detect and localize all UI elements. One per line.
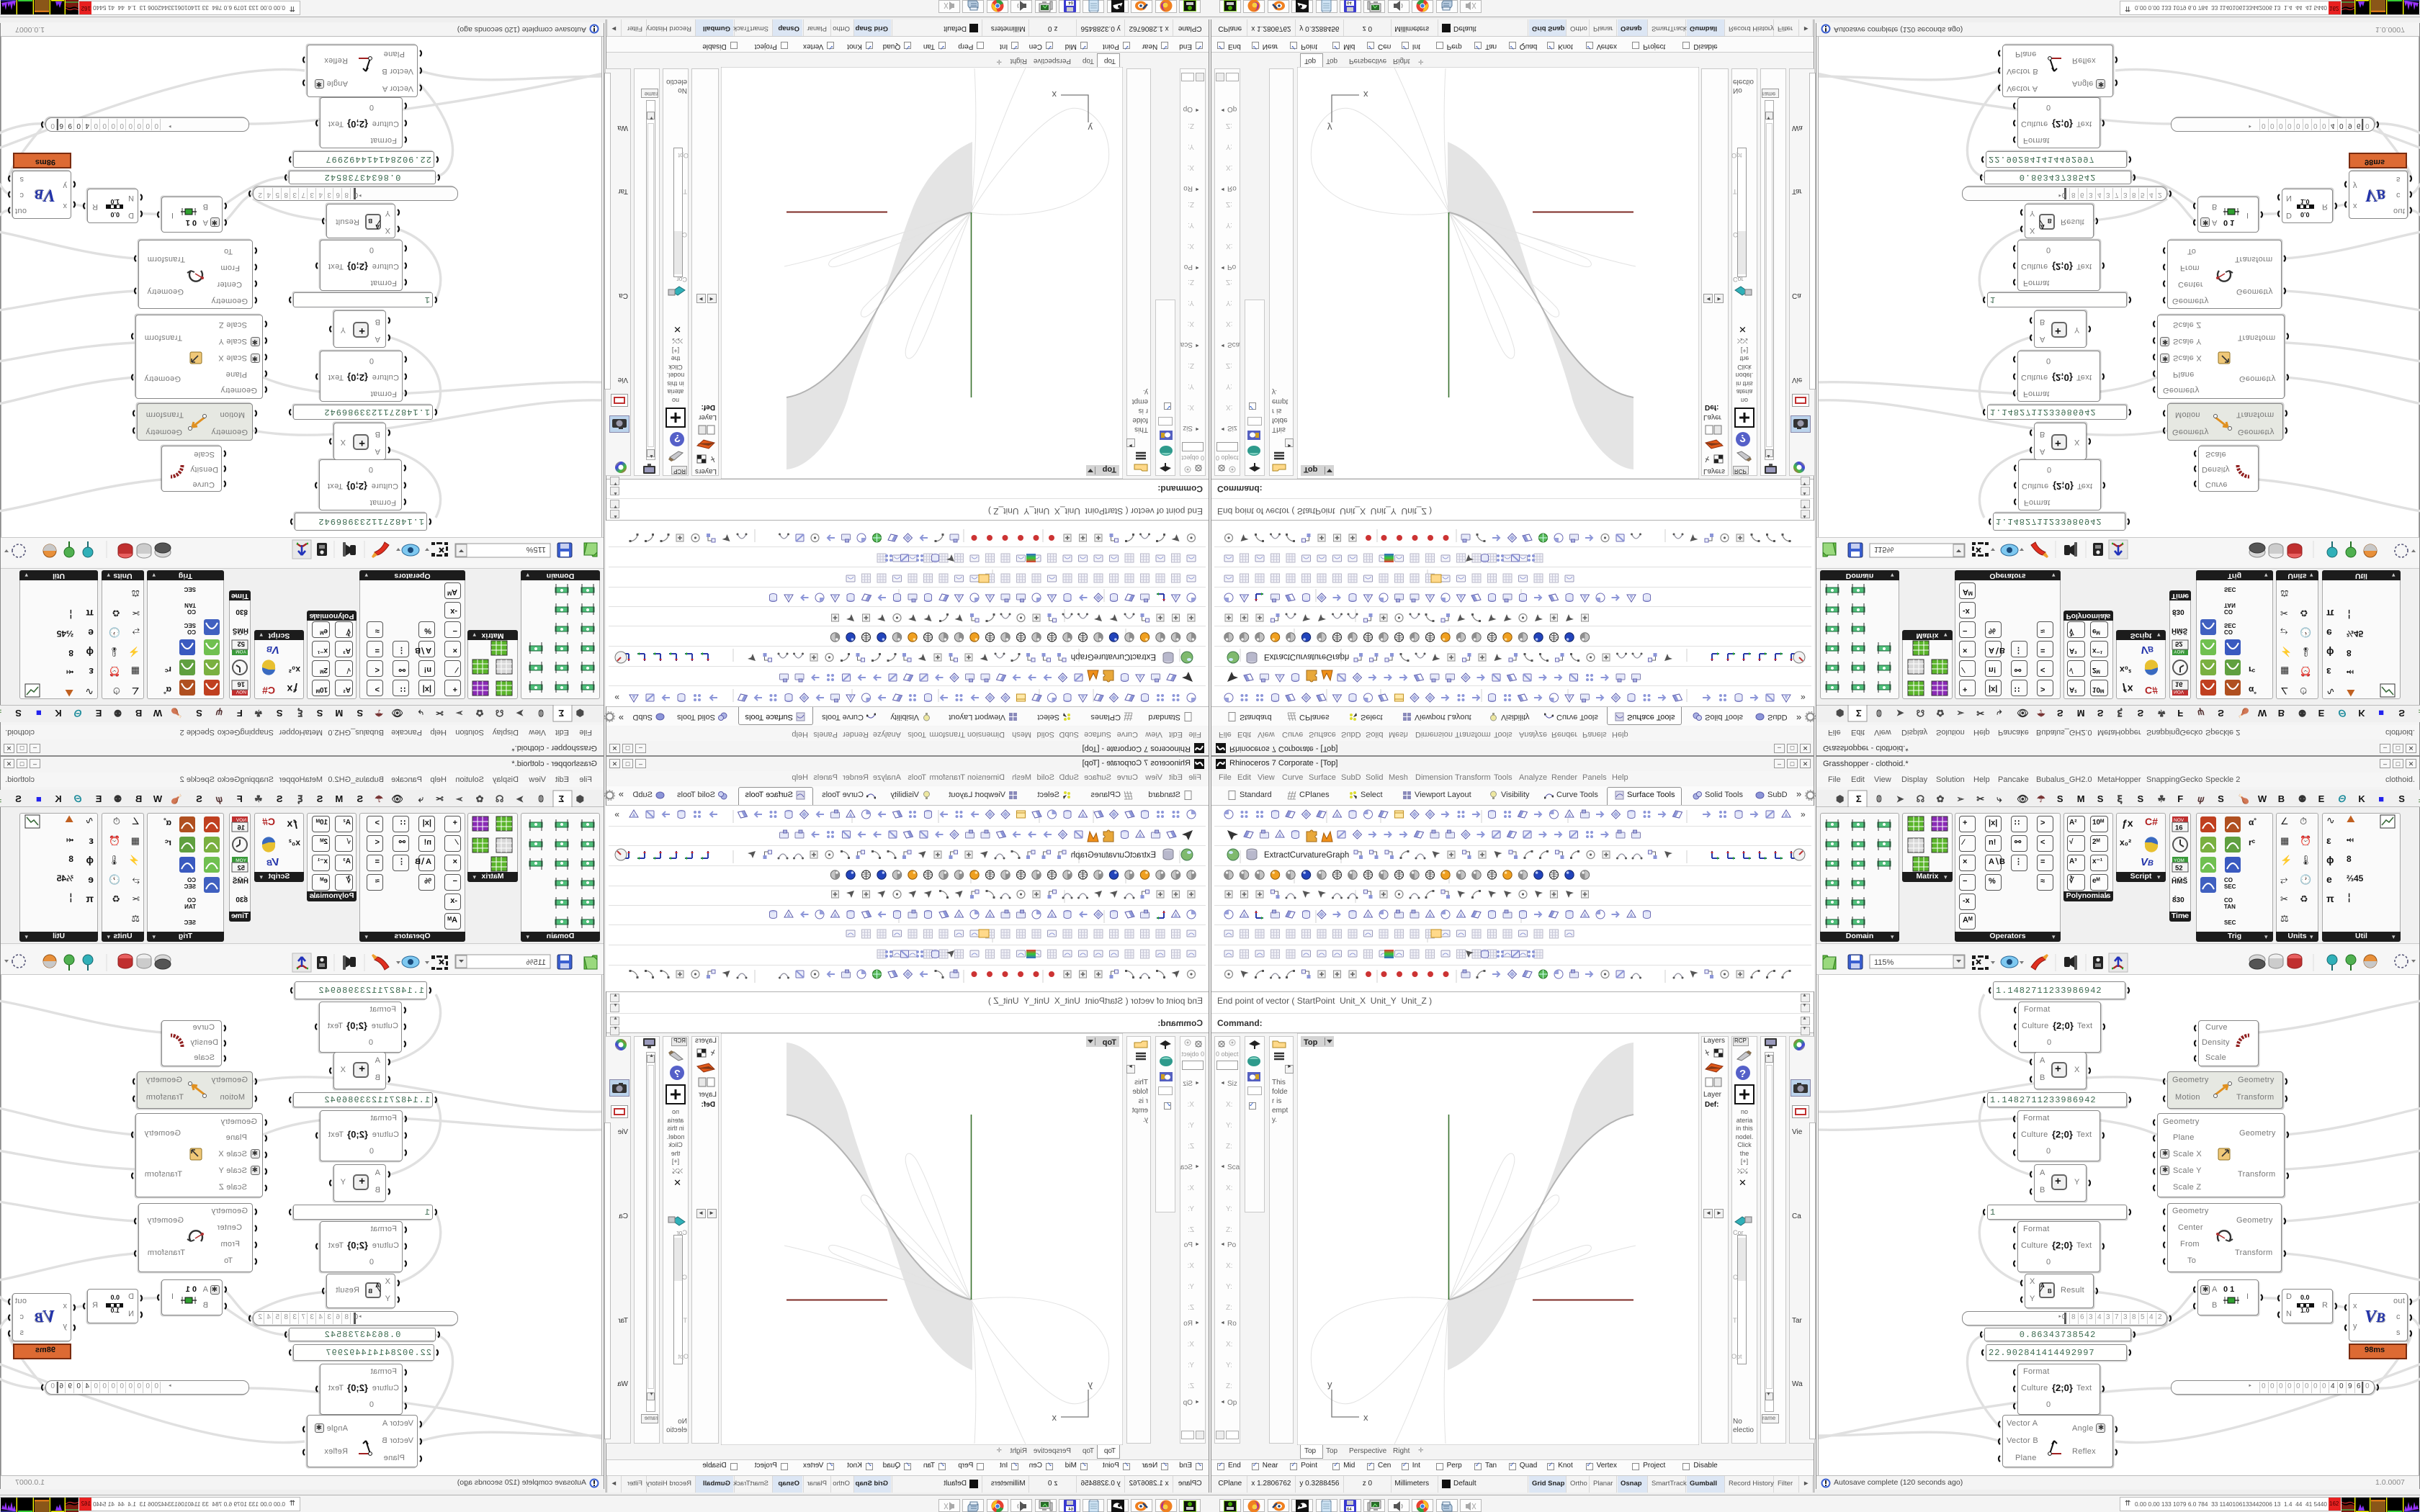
svg-text:S: S: [277, 708, 283, 719]
svg-text:W: W: [153, 708, 162, 719]
svg-text:K: K: [2358, 793, 2365, 804]
svg-text:?: ?: [1739, 432, 1746, 444]
svg-text:☊: ☊: [495, 708, 503, 719]
svg-text:F: F: [237, 708, 243, 719]
svg-text:»: »: [1801, 809, 1806, 819]
svg-text:🍗: 🍗: [171, 708, 182, 719]
svg-text:🍗: 🍗: [2238, 708, 2249, 719]
svg-text:52: 52: [2175, 640, 2183, 648]
svg-text:ExtractCurvatureGraph: ExtractCurvatureGraph: [1264, 851, 1349, 860]
svg-text:𝛏: 𝛏: [2117, 708, 2123, 719]
svg-text:y: y: [1327, 1379, 1332, 1390]
svg-text:✂: ✂: [1976, 793, 1984, 804]
svg-text:S: S: [15, 793, 22, 804]
svg-text:»: »: [1801, 693, 1806, 703]
svg-text:■: ■: [36, 708, 42, 719]
svg-text:»: »: [614, 693, 619, 703]
svg-text:S: S: [2057, 708, 2063, 719]
svg-text:Top: Top: [1102, 465, 1116, 474]
svg-text:☊: ☊: [1917, 793, 1925, 804]
svg-text:S: S: [2218, 793, 2224, 804]
svg-text:?: ?: [1739, 1068, 1746, 1080]
svg-text:➢: ➢: [1956, 793, 1965, 804]
svg-text:𝛏: 𝛏: [297, 708, 302, 719]
svg-text:E: E: [95, 708, 102, 719]
svg-text:ExtractCurvatureGraph: ExtractCurvatureGraph: [1264, 652, 1349, 661]
svg-text:y: y: [1327, 122, 1332, 133]
svg-text:Σ: Σ: [1856, 793, 1862, 804]
svg-text:115%: 115%: [526, 545, 546, 554]
svg-text:E: E: [2318, 708, 2325, 719]
svg-text:?: ?: [674, 1068, 681, 1080]
svg-text:»: »: [614, 809, 619, 819]
svg-text:𝛏: 𝛏: [2117, 793, 2123, 804]
svg-text:✿: ✿: [476, 793, 484, 804]
svg-text:M: M: [2077, 708, 2085, 719]
svg-text:S: S: [2097, 793, 2104, 804]
svg-text:S: S: [2138, 708, 2144, 719]
svg-text:S: S: [196, 708, 202, 719]
svg-text:Σ: Σ: [1856, 708, 1862, 719]
svg-text:☘: ☘: [2157, 793, 2166, 804]
svg-text:Top: Top: [1102, 1038, 1116, 1047]
svg-text:𝜓: 𝜓: [215, 793, 223, 804]
svg-text:Σ: Σ: [558, 708, 564, 719]
svg-text:F: F: [237, 793, 243, 804]
svg-text:B: B: [2278, 793, 2285, 804]
svg-text:y: y: [1088, 122, 1093, 133]
svg-text:115%: 115%: [526, 958, 546, 967]
svg-text:S: S: [15, 708, 22, 719]
svg-text:𝛏: 𝛏: [297, 793, 302, 804]
svg-text:F: F: [2177, 708, 2183, 719]
svg-text:S: S: [196, 793, 202, 804]
svg-text:☊: ☊: [495, 793, 503, 804]
svg-text:64: 64: [1068, 1508, 1073, 1512]
svg-text:☘: ☘: [2157, 708, 2166, 719]
svg-text:■: ■: [36, 793, 42, 804]
svg-text:16: 16: [237, 824, 245, 832]
svg-text:M: M: [335, 793, 343, 804]
svg-text:K: K: [55, 708, 62, 719]
svg-text:Top: Top: [1304, 1038, 1318, 1047]
svg-text:W: W: [2258, 793, 2267, 804]
svg-text:64: 64: [1347, 0, 1352, 4]
svg-text:➢: ➢: [1956, 708, 1965, 719]
svg-text:115%: 115%: [1874, 958, 1894, 967]
svg-text:52: 52: [2175, 865, 2183, 873]
svg-text:⤷: ⤷: [418, 708, 423, 719]
svg-text:⚉: ⚉: [2298, 793, 2307, 804]
svg-text:𝜓: 𝜓: [2197, 708, 2205, 719]
svg-text:E: E: [2318, 793, 2325, 804]
svg-text:F: F: [2177, 793, 2183, 804]
svg-text:52: 52: [237, 865, 245, 873]
svg-text:☘: ☘: [254, 708, 263, 719]
svg-text:x: x: [1363, 89, 1368, 100]
svg-text:W: W: [2258, 708, 2267, 719]
svg-text:☂: ☂: [2037, 708, 2045, 719]
svg-text:16: 16: [237, 680, 245, 688]
svg-text:x: x: [1052, 1412, 1057, 1423]
svg-text:S: S: [2398, 708, 2405, 719]
svg-text:🍗: 🍗: [2238, 793, 2249, 804]
svg-text:⬢: ⬢: [1836, 708, 1844, 719]
svg-text:👁: 👁: [391, 793, 403, 804]
svg-text:y: y: [1088, 1379, 1093, 1390]
svg-text:16: 16: [2175, 680, 2183, 688]
svg-text:S: S: [357, 708, 363, 719]
svg-text:➤: ➤: [516, 793, 524, 804]
svg-text:S: S: [2218, 708, 2224, 719]
svg-text:Top: Top: [1304, 465, 1318, 474]
svg-text:👁: 👁: [391, 708, 403, 719]
svg-text:52: 52: [237, 640, 245, 648]
svg-text:16: 16: [2175, 824, 2183, 832]
svg-text:⚉: ⚉: [114, 708, 122, 719]
svg-text:𝛩: 𝛩: [2339, 793, 2347, 804]
svg-text:Σ: Σ: [558, 793, 564, 804]
svg-text:x: x: [1363, 1412, 1368, 1423]
svg-text:⬢: ⬢: [576, 793, 584, 804]
svg-text:S: S: [2057, 793, 2063, 804]
svg-text:✂: ✂: [1976, 708, 1984, 719]
svg-text:⥅: ⥅: [0, 708, 1, 719]
svg-text:E: E: [95, 793, 102, 804]
svg-text:⬢: ⬢: [1836, 793, 1844, 804]
svg-text:✿: ✿: [476, 708, 484, 719]
svg-text:K: K: [55, 793, 62, 804]
svg-text:𝛩: 𝛩: [74, 708, 82, 719]
svg-text:𝟘: 𝟘: [1876, 708, 1882, 719]
svg-text:64: 64: [1347, 1508, 1352, 1512]
svg-text:☂: ☂: [375, 708, 383, 719]
svg-text:W: W: [153, 793, 162, 804]
svg-text:☂: ☂: [2037, 793, 2045, 804]
svg-text:ExtractCurvatureGraph: ExtractCurvatureGraph: [1071, 652, 1156, 661]
svg-text:S: S: [2138, 793, 2144, 804]
svg-text:𝛩: 𝛩: [2339, 708, 2347, 719]
svg-text:?: ?: [674, 432, 681, 444]
svg-text:S: S: [277, 793, 283, 804]
svg-text:M: M: [335, 708, 343, 719]
svg-text:𝟘: 𝟘: [1876, 793, 1882, 804]
svg-text:⤷: ⤷: [418, 793, 423, 804]
svg-text:S: S: [316, 793, 323, 804]
svg-text:𝟘: 𝟘: [538, 793, 544, 804]
svg-text:➢: ➢: [455, 708, 464, 719]
svg-text:ExtractCurvatureGraph: ExtractCurvatureGraph: [1071, 851, 1156, 860]
svg-text:⚉: ⚉: [2298, 708, 2307, 719]
svg-text:☊: ☊: [1917, 708, 1925, 719]
svg-text:𝟘: 𝟘: [538, 708, 544, 719]
svg-text:➤: ➤: [1896, 793, 1904, 804]
svg-text:✿: ✿: [1937, 708, 1945, 719]
svg-text:S: S: [316, 708, 323, 719]
svg-text:⬢: ⬢: [576, 708, 584, 719]
svg-text:☂: ☂: [375, 793, 383, 804]
svg-text:⥅: ⥅: [0, 793, 1, 804]
svg-text:S: S: [357, 793, 363, 804]
svg-text:■: ■: [2378, 708, 2384, 719]
svg-text:𝛩: 𝛩: [74, 793, 82, 804]
svg-text:✂: ✂: [436, 708, 444, 719]
svg-text:64: 64: [1068, 0, 1073, 4]
svg-text:✂: ✂: [436, 793, 444, 804]
svg-text:➤: ➤: [1896, 708, 1904, 719]
svg-text:S: S: [2097, 708, 2104, 719]
svg-text:👁: 👁: [2017, 793, 2029, 804]
svg-text:■: ■: [2378, 793, 2384, 804]
svg-text:K: K: [2358, 708, 2365, 719]
svg-text:x: x: [1052, 89, 1057, 100]
svg-text:B: B: [135, 708, 142, 719]
svg-text:M: M: [2077, 793, 2085, 804]
svg-text:👁: 👁: [2017, 708, 2029, 719]
svg-text:➢: ➢: [455, 793, 464, 804]
svg-text:☘: ☘: [254, 793, 263, 804]
svg-text:S: S: [2398, 793, 2405, 804]
svg-text:115%: 115%: [1874, 545, 1894, 554]
svg-text:⚉: ⚉: [114, 793, 122, 804]
svg-text:⤷: ⤷: [1996, 708, 2002, 719]
svg-text:𝜓: 𝜓: [215, 708, 223, 719]
svg-text:⤷: ⤷: [1996, 793, 2002, 804]
svg-text:𝜓: 𝜓: [2197, 793, 2205, 804]
svg-text:B: B: [135, 793, 142, 804]
svg-text:B: B: [2278, 708, 2285, 719]
svg-text:🍗: 🍗: [171, 793, 182, 804]
svg-text:➤: ➤: [516, 708, 524, 719]
svg-text:✿: ✿: [1937, 793, 1945, 804]
